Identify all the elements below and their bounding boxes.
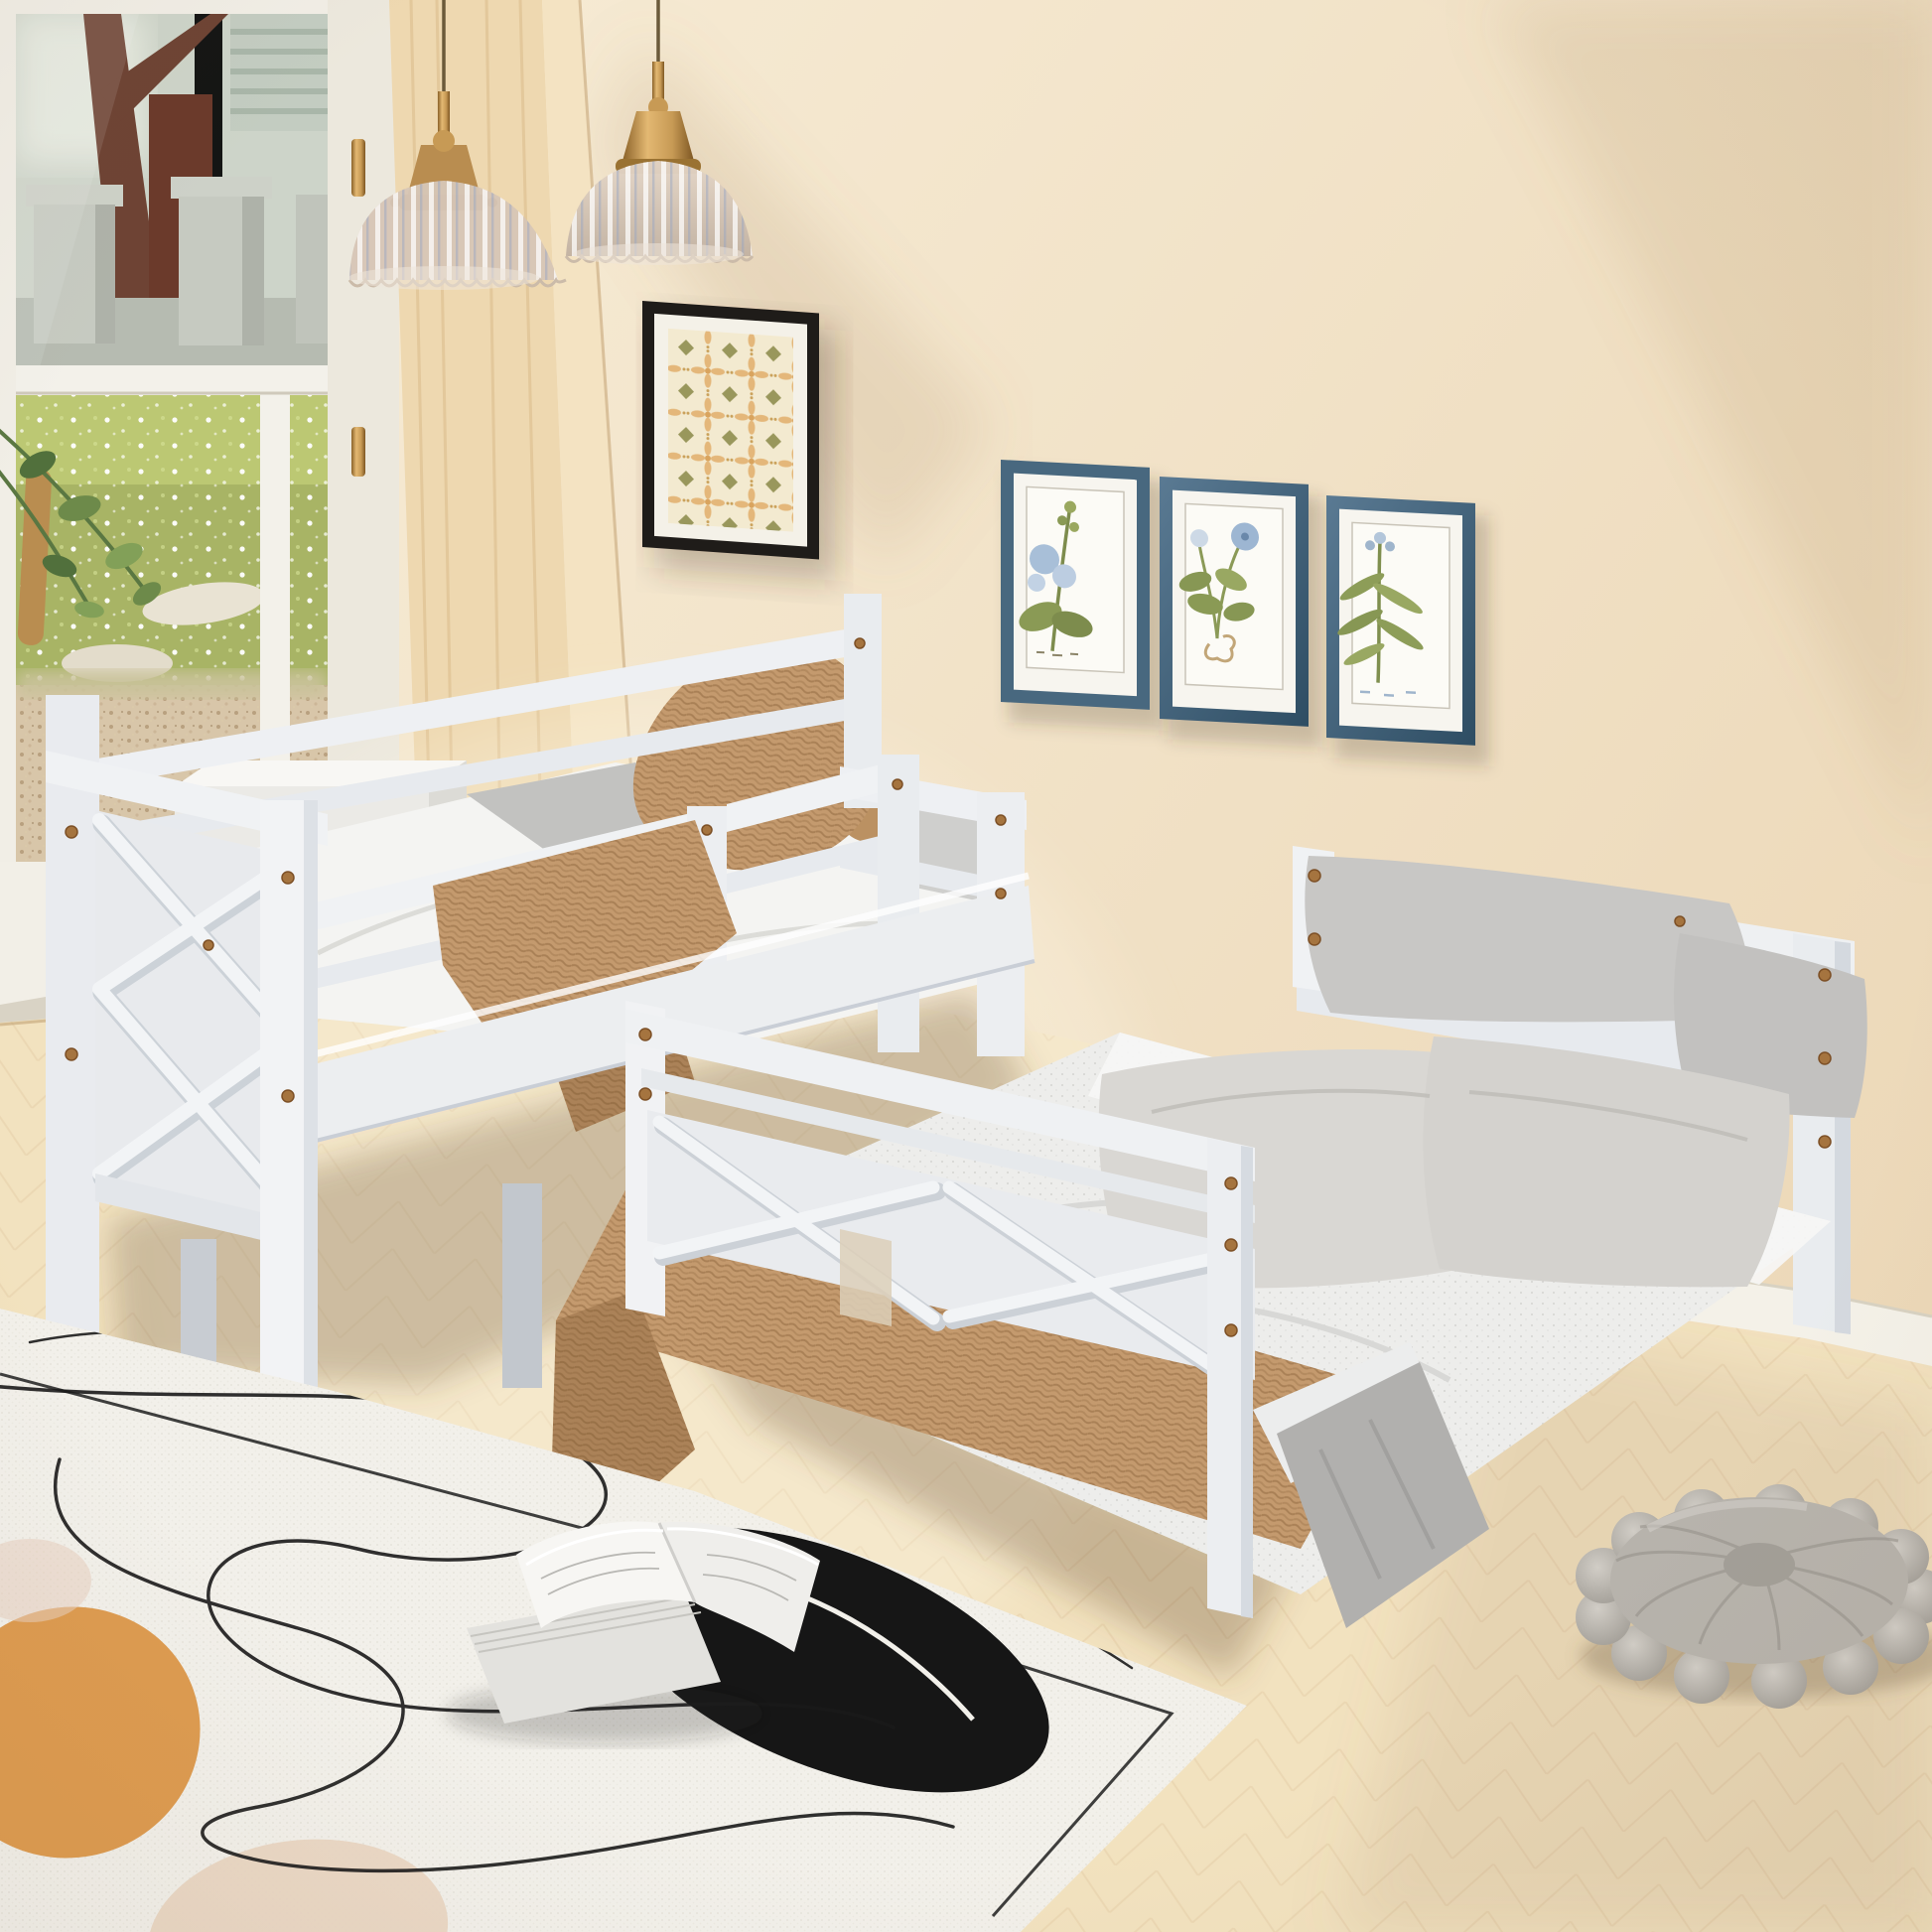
bedroom-scene <box>0 0 1932 1932</box>
vignette-overlay <box>0 0 1932 1932</box>
bedroom-photo <box>0 0 1932 1932</box>
